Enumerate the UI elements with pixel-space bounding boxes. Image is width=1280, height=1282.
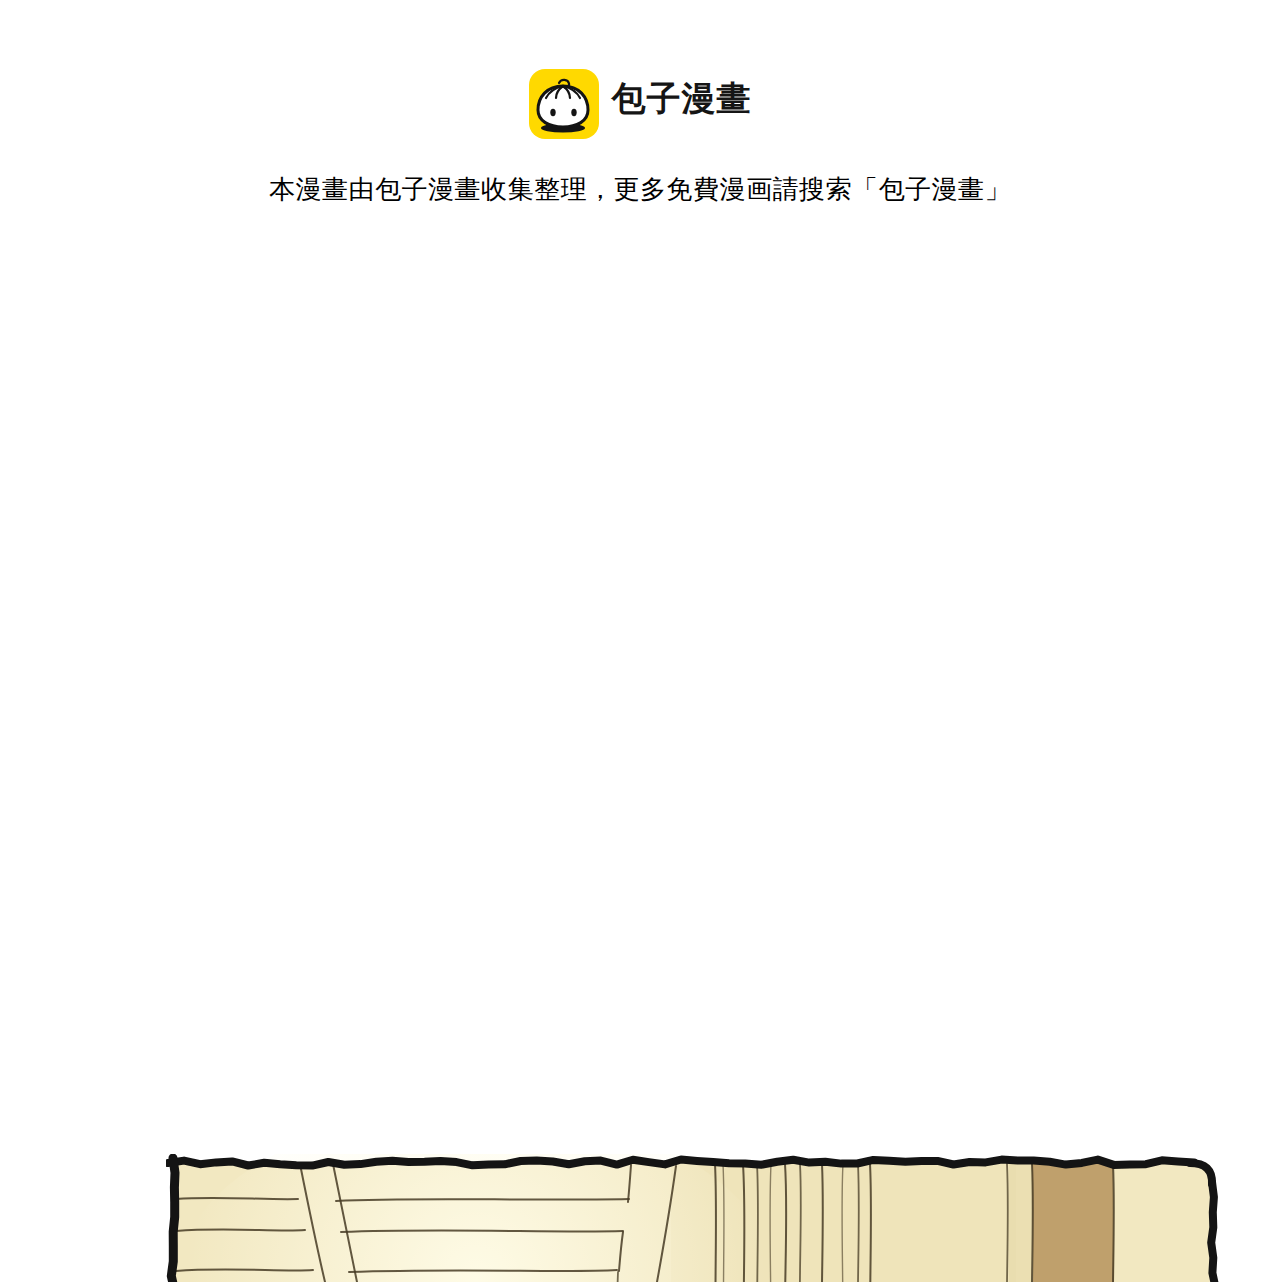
panel-border-right <box>1211 1182 1216 1282</box>
bun-eye-right <box>571 109 576 116</box>
brown-stripe <box>1032 1163 1115 1282</box>
notice-text: 本漫畫由包子漫畫收集整理，更多免費漫画請搜索「包子漫畫」 <box>0 172 1280 207</box>
comic-reader-page: 包子漫畫 本漫畫由包子漫畫收集整理，更多免費漫画請搜索「包子漫畫」 <box>0 0 1280 1282</box>
bun-face <box>538 86 588 127</box>
bun-eye-left <box>550 109 555 116</box>
comic-panel-artwork <box>166 1154 1222 1282</box>
panel-border-left <box>171 1158 175 1282</box>
baozi-logo-icon <box>529 69 599 139</box>
comic-panel <box>166 1154 1222 1282</box>
brand-logo: 包子漫畫 <box>0 69 1280 139</box>
brand-title: 包子漫畫 <box>612 76 752 122</box>
